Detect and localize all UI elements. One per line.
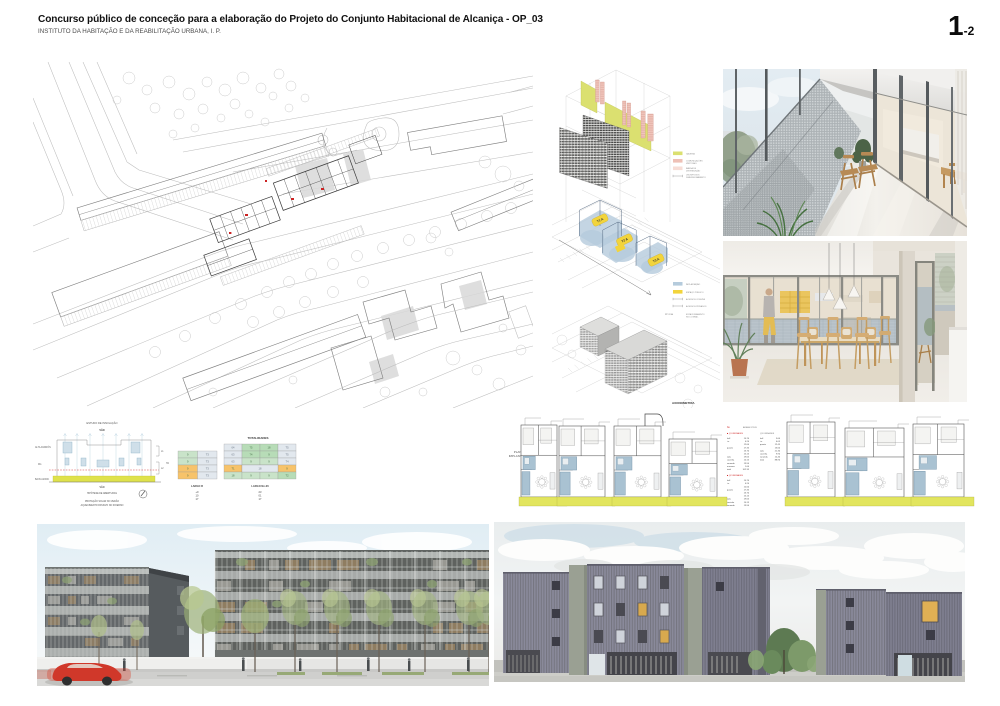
svg-text:IMPLANTAÇÃO: IMPLANTAÇÃO <box>686 283 701 286</box>
svg-text:13.70: 13.70 <box>744 450 750 452</box>
svg-text:17: 17 <box>196 497 199 501</box>
svg-text:ACESSOS PRIVADOS: ACESSOS PRIVADOS <box>686 305 707 308</box>
svg-text:88.90: 88.90 <box>775 460 781 462</box>
svg-text:DIMENSIONAMENTO: DIMENSIONAMENTO <box>686 176 706 179</box>
svg-text:total: total <box>727 468 731 471</box>
svg-text:i.s.: i.s. <box>727 441 730 443</box>
svg-text:10.70: 10.70 <box>744 438 750 440</box>
svg-text:hall: hall <box>727 438 731 440</box>
svg-text:DISTRIBUIÇÃO: DISTRIBUIÇÃO <box>686 169 701 172</box>
svg-text:i.s.: i.s. <box>760 441 763 443</box>
svg-text:L2: L2 <box>161 468 164 470</box>
svg-text:13.90: 13.90 <box>744 505 750 507</box>
svg-text:i.s.: i.s. <box>727 483 730 485</box>
svg-text:ESTUDO DE INSOLAÇÃO: ESTUDO DE INSOLAÇÃO <box>87 420 118 425</box>
svg-text:AQUECIMENTO PASSIVO NO INVERNO: AQUECIMENTO PASSIVO NO INVERNO <box>81 504 124 507</box>
svg-text:AXONOMETRIA: AXONOMETRIA <box>672 401 695 405</box>
svg-text:13.60: 13.60 <box>775 447 781 449</box>
svg-text:Q3 UNIDADES: Q3 UNIDADES <box>760 432 775 435</box>
svg-text:L1: L1 <box>161 451 164 453</box>
svg-text:10: 10 <box>196 493 199 497</box>
svg-text:10.70: 10.70 <box>744 480 750 482</box>
svg-text:cozinha: cozinha <box>727 502 735 504</box>
svg-text:hall: hall <box>727 480 731 482</box>
svg-text:23: 23 <box>259 490 262 494</box>
svg-text:17.35: 17.35 <box>744 489 750 491</box>
svg-text:VERTICAIS: VERTICAIS <box>686 162 697 165</box>
svg-text:VÃO: VÃO <box>99 429 104 432</box>
svg-text:PP / P.04: PP / P.04 <box>665 314 674 316</box>
svg-text:quarto: quarto <box>727 488 734 491</box>
svg-text:ESPAÇO PÚBLICO: ESPAÇO PÚBLICO <box>686 291 704 294</box>
svg-text:4.20: 4.20 <box>745 483 750 485</box>
svg-text:ALTA ANDRÓN: ALTA ANDRÓN <box>35 446 51 449</box>
svg-text:12.45: 12.45 <box>775 444 781 446</box>
svg-text:GALERIA: GALERIA <box>686 153 695 156</box>
svg-text:NO LOGRAD.: NO LOGRAD. <box>686 315 699 318</box>
svg-text:T4: T4 <box>727 426 730 429</box>
svg-text:1.60: 1.60 <box>745 466 750 468</box>
svg-text:12.40: 12.40 <box>775 457 781 459</box>
svg-text:01: 01 <box>259 493 262 497</box>
svg-text:BAIXA ANDR.: BAIXA ANDR. <box>35 478 50 481</box>
svg-text:10.15: 10.15 <box>744 460 750 462</box>
svg-text:4.05: 4.05 <box>776 441 781 443</box>
svg-text:quarto: quarto <box>727 446 734 449</box>
svg-text:17.35: 17.35 <box>744 447 750 449</box>
svg-text:12.60: 12.60 <box>744 486 750 488</box>
svg-text:15.15: 15.15 <box>744 496 750 498</box>
svg-text:21.30: 21.30 <box>775 450 781 452</box>
svg-text:19.65: 19.65 <box>744 457 750 459</box>
svg-text:■ Q1 UNIDADES: ■ Q1 UNIDADES <box>727 432 744 435</box>
svg-text:12.60: 12.60 <box>744 444 750 446</box>
svg-text:17: 17 <box>259 497 262 501</box>
svg-text:13.70: 13.70 <box>744 493 750 495</box>
svg-text:9.60: 9.60 <box>776 438 781 440</box>
svg-text:102.35: 102.35 <box>743 469 750 471</box>
svg-text:quarto: quarto <box>760 443 767 446</box>
svg-text:9.90: 9.90 <box>776 454 781 456</box>
svg-text:cozinha: cozinha <box>760 454 768 456</box>
svg-text:total: total <box>760 459 764 462</box>
svg-text:sala: sala <box>727 499 732 501</box>
svg-text:sala: sala <box>760 450 765 452</box>
svg-text:varanda: varanda <box>727 462 735 465</box>
svg-text:ACESSOS COMUNS: ACESSOS COMUNS <box>686 298 706 301</box>
svg-text:+0: +0 <box>196 490 200 494</box>
svg-text:varanda: varanda <box>727 504 735 507</box>
svg-text:LARGO Nn-06: LARGO Nn-06 <box>251 484 269 488</box>
svg-text:cozinha: cozinha <box>727 460 735 462</box>
svg-text:TOTALIDADES: TOTALIDADES <box>247 436 268 440</box>
svg-text:VÃO: VÃO <box>100 486 105 489</box>
svg-text:19.65: 19.65 <box>744 499 750 501</box>
svg-text:13.90: 13.90 <box>744 463 750 465</box>
svg-text:hall: hall <box>760 438 764 440</box>
svg-text:4.20: 4.20 <box>745 441 750 443</box>
svg-text:15.15: 15.15 <box>744 454 750 456</box>
svg-text:10.15: 10.15 <box>744 502 750 504</box>
svg-text:RG: RG <box>38 464 42 466</box>
svg-text:sala: sala <box>727 457 732 459</box>
svg-text:arrumos: arrumos <box>727 465 735 468</box>
svg-text:■ Q2 UNIDADES: ■ Q2 UNIDADES <box>727 474 744 477</box>
svg-text:ÁREAS ÚTEIS: ÁREAS ÚTEIS <box>743 426 757 429</box>
svg-text:LARGO R: LARGO R <box>191 484 203 488</box>
svg-text:varanda: varanda <box>760 456 768 459</box>
svg-text:HIPÓTESE DE ABERTURAS: HIPÓTESE DE ABERTURAS <box>87 492 117 495</box>
svg-text:PROTEÇÃO SOLAR NO VERÃO: PROTEÇÃO SOLAR NO VERÃO <box>85 500 119 503</box>
